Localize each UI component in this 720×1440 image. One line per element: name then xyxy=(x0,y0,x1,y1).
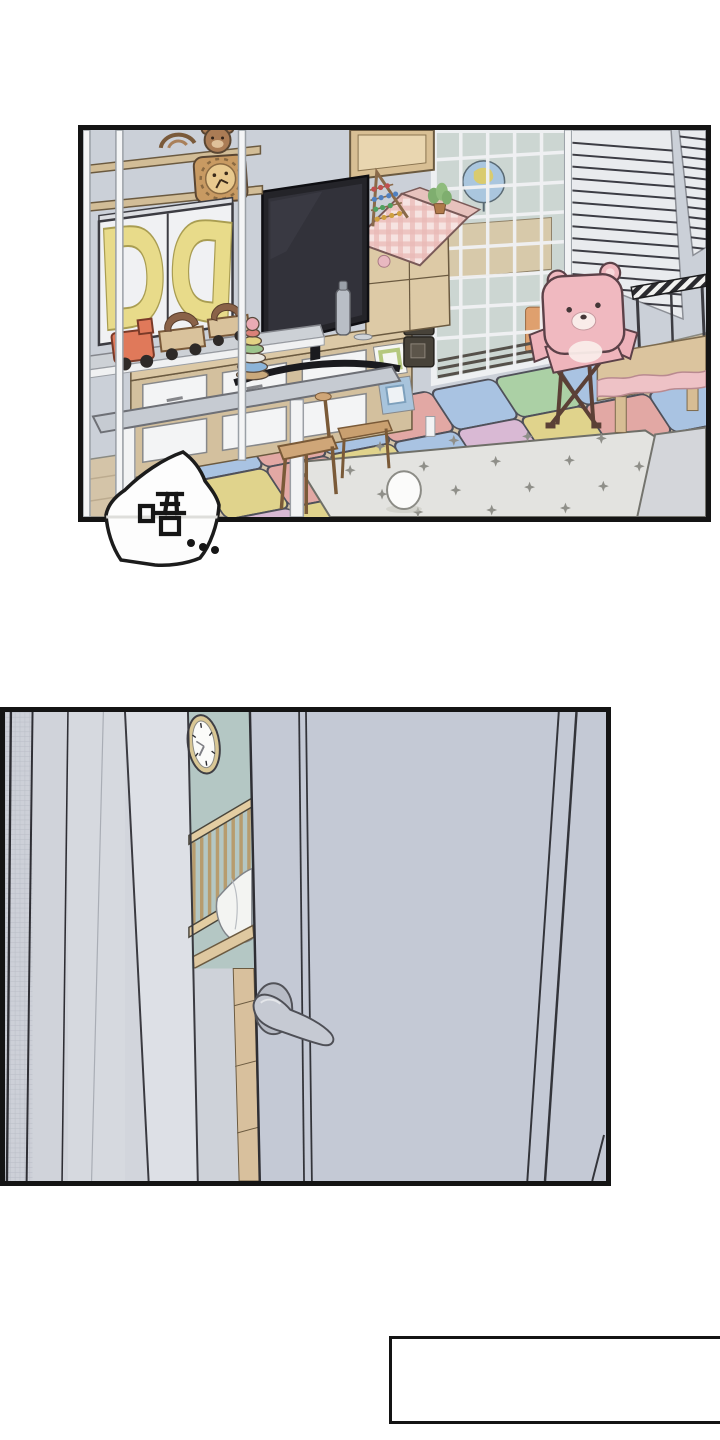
caption-box xyxy=(389,1336,720,1424)
nursery-gap xyxy=(184,712,260,1181)
door-frame-left xyxy=(5,712,202,1181)
white-ball xyxy=(386,471,422,513)
panel-door-ajar xyxy=(0,707,611,1186)
wall-shelf xyxy=(350,130,434,180)
speech-bubble-shape xyxy=(96,444,246,594)
door-scene xyxy=(5,712,606,1181)
comic-page: D D xyxy=(0,0,720,1440)
speech-bubble: 唔... xyxy=(96,444,246,594)
